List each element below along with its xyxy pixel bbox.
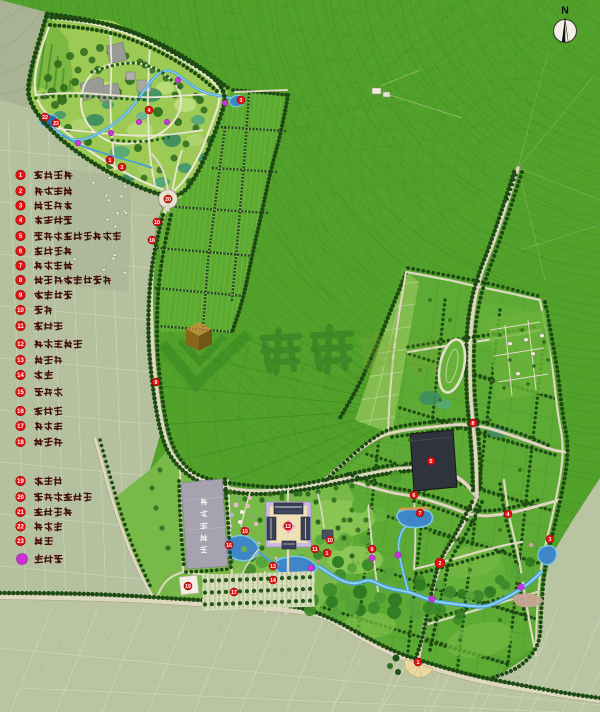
- svg-text:17: 17: [17, 424, 24, 430]
- svg-text:15: 15: [17, 390, 24, 396]
- svg-text:9: 9: [371, 547, 374, 553]
- svg-text:22: 22: [42, 115, 48, 121]
- svg-text:1: 1: [326, 551, 329, 557]
- svg-text:1: 1: [417, 660, 420, 666]
- svg-text:16: 16: [17, 409, 24, 415]
- svg-text:20: 20: [17, 495, 24, 501]
- svg-text:18: 18: [149, 238, 155, 244]
- svg-text:16: 16: [226, 543, 232, 549]
- svg-text:13: 13: [17, 358, 24, 364]
- svg-text:12: 12: [285, 524, 291, 530]
- svg-text:4: 4: [148, 108, 151, 114]
- svg-text:13: 13: [270, 564, 276, 570]
- svg-text:19: 19: [185, 584, 191, 590]
- svg-text:23: 23: [17, 539, 24, 545]
- svg-text:7: 7: [419, 511, 422, 517]
- svg-text:2: 2: [121, 165, 124, 171]
- svg-text:N: N: [561, 5, 569, 17]
- svg-text:18: 18: [17, 440, 24, 446]
- svg-text:10: 10: [154, 220, 160, 226]
- svg-text:21: 21: [17, 510, 24, 516]
- svg-text:12: 12: [17, 342, 24, 348]
- svg-text:2: 2: [439, 561, 442, 567]
- svg-text:17: 17: [231, 590, 237, 596]
- svg-text:11: 11: [312, 547, 318, 553]
- svg-text:10: 10: [17, 308, 24, 314]
- svg-text:20: 20: [165, 197, 171, 203]
- svg-text:3: 3: [549, 537, 552, 543]
- svg-text:4: 4: [507, 512, 510, 518]
- svg-text:23: 23: [53, 121, 59, 127]
- svg-text:22: 22: [17, 525, 24, 531]
- svg-text:14: 14: [270, 578, 276, 584]
- svg-text:5: 5: [430, 459, 433, 465]
- svg-text:3: 3: [240, 98, 243, 104]
- svg-text:9: 9: [155, 380, 158, 386]
- svg-text:14: 14: [17, 373, 24, 379]
- svg-text:6: 6: [413, 493, 416, 499]
- svg-text:8: 8: [472, 421, 475, 427]
- svg-text:15: 15: [242, 529, 248, 535]
- svg-text:1: 1: [109, 158, 112, 164]
- svg-text:11: 11: [17, 324, 24, 330]
- svg-text:10: 10: [327, 538, 333, 544]
- svg-text:19: 19: [17, 479, 24, 485]
